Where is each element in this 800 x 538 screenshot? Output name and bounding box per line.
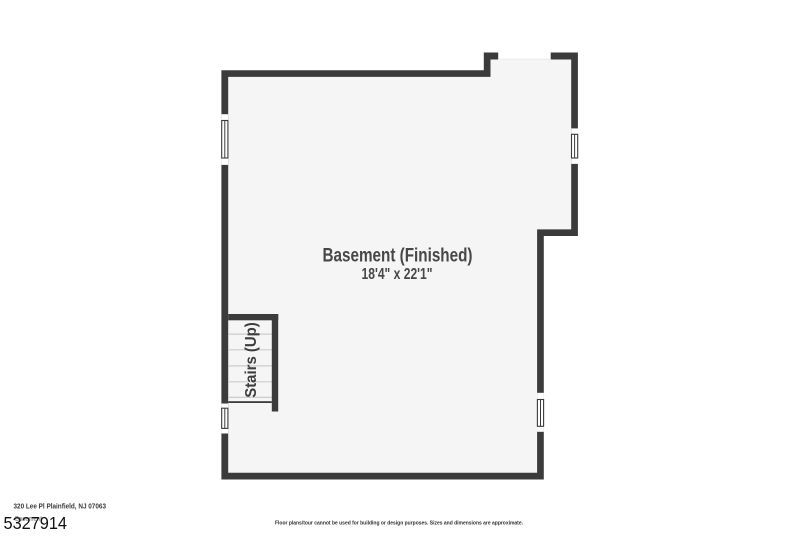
svg-text:18'4" x 22'1": 18'4" x 22'1"	[362, 266, 433, 283]
svg-text:Stairs (Up): Stairs (Up)	[243, 322, 260, 398]
svg-text:5327914: 5327914	[4, 513, 68, 533]
svg-text:320 Lee Pl Plainfield, NJ 0706: 320 Lee Pl Plainfield, NJ 07063	[14, 502, 107, 511]
svg-text:Floor plans/tour cannot be use: Floor plans/tour cannot be used for buil…	[275, 521, 524, 527]
svg-text:Basement (Finished): Basement (Finished)	[323, 246, 473, 267]
